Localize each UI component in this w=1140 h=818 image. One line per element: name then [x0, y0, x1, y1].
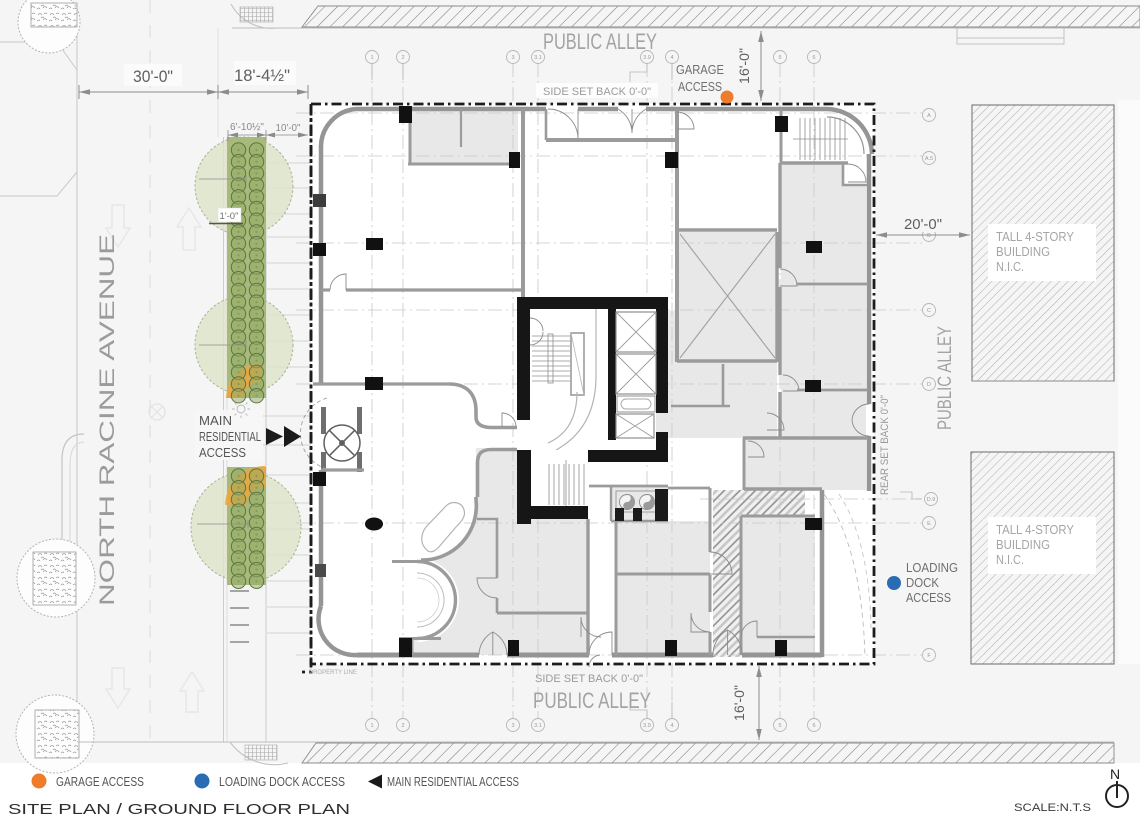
- svg-text:2: 2: [401, 723, 404, 729]
- svg-text:E: E: [927, 521, 931, 527]
- svg-text:1: 1: [370, 723, 373, 729]
- svg-text:N.I.C.: N.I.C.: [996, 553, 1024, 567]
- svg-text:B: B: [927, 233, 931, 239]
- svg-text:PUBLIC ALLEY: PUBLIC ALLEY: [935, 326, 956, 430]
- svg-text:DOCK: DOCK: [906, 576, 940, 590]
- svg-text:5: 5: [778, 723, 781, 729]
- svg-text:20'-0": 20'-0": [904, 216, 942, 233]
- svg-text:4: 4: [670, 55, 673, 61]
- svg-text:30'-0": 30'-0": [133, 67, 173, 86]
- svg-text:N: N: [1110, 766, 1120, 782]
- svg-text:6'-10½": 6'-10½": [230, 122, 264, 133]
- svg-text:3.9: 3.9: [643, 55, 651, 61]
- svg-text:N.I.C.: N.I.C.: [996, 260, 1024, 274]
- svg-text:A.5: A.5: [925, 156, 933, 162]
- svg-text:MAIN RESIDENTIAL ACCESS: MAIN RESIDENTIAL ACCESS: [387, 774, 519, 789]
- svg-text:A: A: [927, 113, 931, 119]
- svg-text:NORTH RACINE AVENUE: NORTH RACINE AVENUE: [96, 234, 119, 606]
- svg-text:D.9: D.9: [927, 497, 936, 503]
- svg-text:MAIN: MAIN: [199, 414, 232, 428]
- svg-text:LOADING: LOADING: [906, 561, 958, 575]
- svg-text:6: 6: [812, 723, 815, 729]
- svg-text:1: 1: [370, 55, 373, 61]
- svg-text:C: C: [927, 308, 931, 314]
- svg-text:10'-0": 10'-0": [276, 123, 301, 134]
- svg-text:ACCESS: ACCESS: [678, 79, 722, 94]
- svg-text:GARAGE ACCESS: GARAGE ACCESS: [56, 774, 144, 789]
- svg-text:LOADING DOCK ACCESS: LOADING DOCK ACCESS: [219, 774, 345, 789]
- svg-text:3: 3: [511, 55, 514, 61]
- svg-text:TALL 4-STORY: TALL 4-STORY: [996, 230, 1075, 244]
- svg-text:SCALE:N.T.S: SCALE:N.T.S: [1014, 802, 1091, 814]
- svg-text:18'-4½": 18'-4½": [234, 66, 290, 85]
- svg-text:6: 6: [812, 55, 815, 61]
- svg-text:BUILDING: BUILDING: [996, 245, 1050, 259]
- svg-text:5: 5: [778, 55, 781, 61]
- svg-text:SIDE SET BACK 0'-0": SIDE SET BACK 0'-0": [535, 673, 643, 685]
- svg-text:ACCESS: ACCESS: [906, 591, 951, 605]
- svg-text:3.9: 3.9: [643, 723, 651, 729]
- svg-text:D: D: [927, 382, 931, 388]
- svg-text:16'-0": 16'-0": [731, 685, 747, 721]
- svg-text:BUILDING: BUILDING: [996, 538, 1050, 552]
- svg-text:REAR SET BACK 0'-0": REAR SET BACK 0'-0": [879, 395, 891, 495]
- svg-text:SITE PLAN / GROUND FLOOR PLAN: SITE PLAN / GROUND FLOOR PLAN: [8, 801, 350, 818]
- svg-text:3.1: 3.1: [534, 55, 542, 61]
- svg-text:1'-0": 1'-0": [220, 211, 239, 222]
- svg-text:TALL 4-STORY: TALL 4-STORY: [996, 523, 1075, 537]
- svg-text:RESIDENTIAL: RESIDENTIAL: [199, 430, 261, 444]
- svg-text:16'-0": 16'-0": [736, 48, 752, 84]
- svg-text:ACCESS: ACCESS: [199, 446, 246, 460]
- svg-text:3.1: 3.1: [534, 723, 542, 729]
- svg-text:GARAGE: GARAGE: [676, 62, 724, 77]
- svg-text:PUBLIC ALLEY: PUBLIC ALLEY: [533, 688, 651, 713]
- svg-text:PROPERTY LINE: PROPERTY LINE: [309, 670, 357, 676]
- svg-text:SIDE SET BACK 0'-0": SIDE SET BACK 0'-0": [543, 86, 651, 98]
- svg-text:PUBLIC ALLEY: PUBLIC ALLEY: [543, 29, 657, 54]
- svg-text:4: 4: [670, 723, 673, 729]
- svg-text:3: 3: [511, 723, 514, 729]
- svg-text:2: 2: [401, 55, 404, 61]
